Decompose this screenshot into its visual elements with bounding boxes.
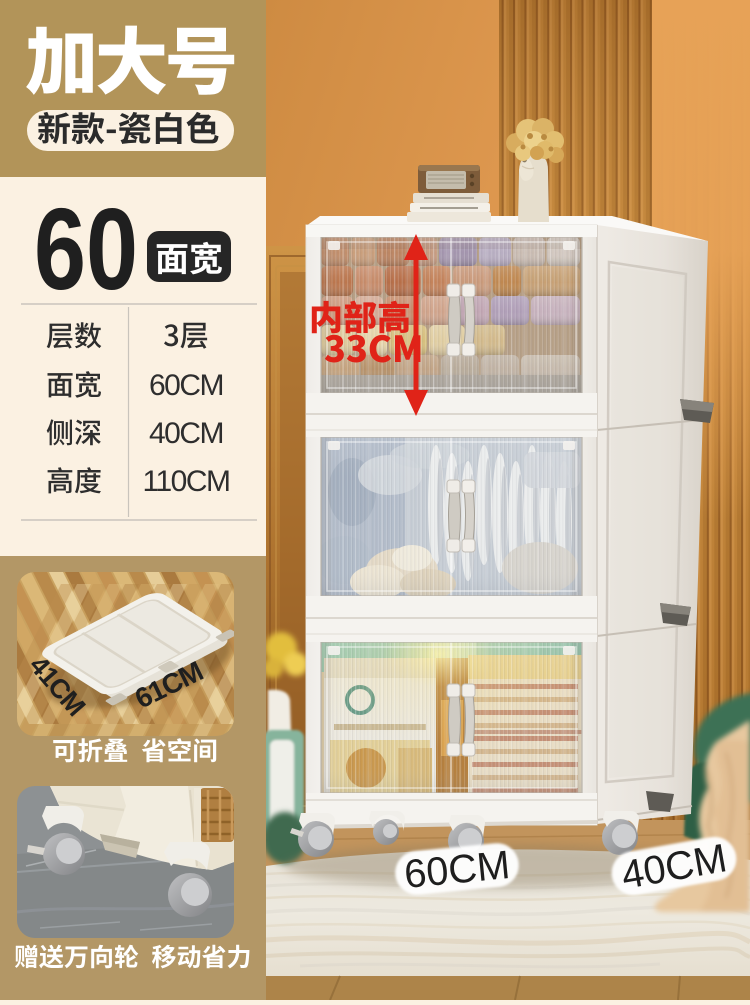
svg-text:60: 60 [34,184,138,314]
svg-text:110CM: 110CM [143,465,230,498]
svg-text:40CM: 40CM [149,417,223,450]
svg-text:60CM: 60CM [149,369,223,402]
